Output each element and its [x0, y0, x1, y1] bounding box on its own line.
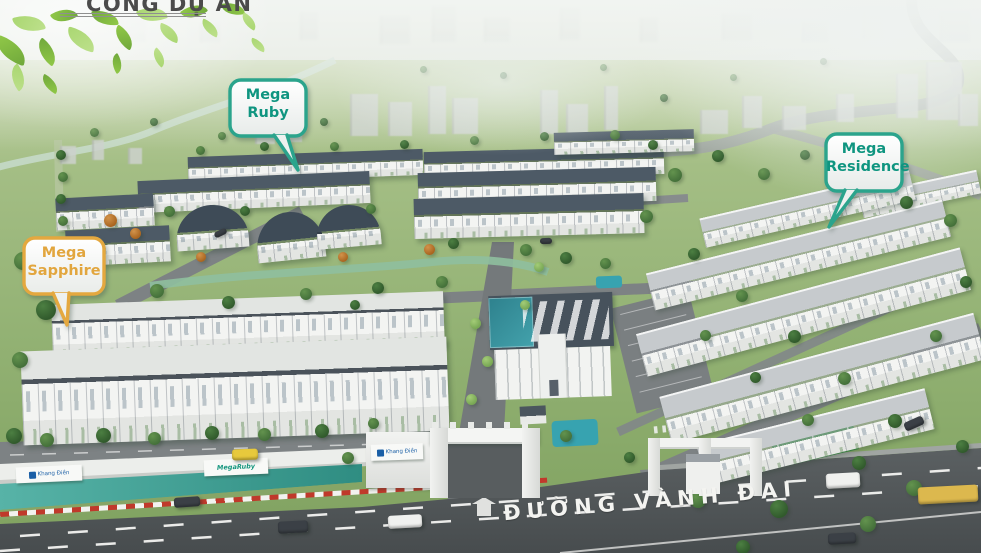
building-row — [414, 193, 645, 239]
tree — [400, 140, 409, 149]
tree — [436, 276, 448, 288]
tree — [148, 432, 161, 445]
distant-building — [940, 12, 970, 42]
tree — [315, 424, 329, 438]
vehicle-white — [388, 514, 423, 529]
vehicle-dark — [174, 496, 201, 508]
tree — [802, 414, 814, 426]
khang-dien-billboard: Khang Điền — [16, 465, 83, 484]
distant-building — [484, 18, 510, 42]
tree — [470, 318, 481, 329]
callout-mega-residence: Mega Residence — [821, 131, 931, 233]
tree — [838, 372, 851, 385]
tree — [258, 428, 271, 441]
gate-pillar — [522, 428, 540, 498]
vehicle-dark — [278, 520, 309, 534]
building-row — [554, 129, 695, 155]
tree — [205, 426, 219, 440]
tree — [700, 330, 711, 341]
tree — [342, 452, 354, 464]
billboard-text: Khang Điền — [37, 470, 69, 477]
distant-building — [560, 8, 580, 40]
clubhouse-skylights — [522, 299, 609, 342]
distant-building — [782, 106, 806, 130]
distant-building — [958, 94, 978, 126]
tree — [104, 214, 117, 227]
callout-line1: Mega — [230, 86, 306, 104]
tree — [196, 252, 206, 262]
tree — [300, 288, 312, 300]
distant-building — [350, 94, 378, 136]
tree — [58, 216, 68, 226]
tree — [956, 440, 969, 453]
tree — [888, 414, 902, 428]
distant-building — [128, 148, 142, 164]
tree — [520, 244, 532, 256]
tree — [470, 136, 479, 145]
vehicle-white — [826, 472, 861, 489]
distant-building — [92, 140, 104, 160]
distant-building — [388, 102, 412, 136]
tree — [800, 150, 810, 160]
tree — [58, 172, 68, 182]
swimming-pool — [551, 419, 598, 447]
billboard-text: MegaRuby — [217, 462, 255, 472]
tree — [6, 428, 22, 444]
tree — [736, 290, 748, 302]
tree — [730, 74, 737, 81]
distant-building — [742, 96, 762, 128]
tree — [944, 214, 957, 227]
tree — [218, 132, 226, 140]
tree — [624, 452, 635, 463]
tree — [852, 456, 866, 470]
tree — [750, 372, 761, 383]
tree — [164, 206, 175, 217]
tree — [240, 206, 250, 216]
callout-line1: Mega — [826, 140, 902, 158]
tree — [640, 210, 653, 223]
tree — [736, 540, 750, 553]
clubhouse-door — [549, 380, 559, 396]
tree — [758, 168, 770, 180]
tree — [56, 194, 66, 204]
distant-building — [862, 8, 884, 40]
distant-building — [300, 12, 318, 40]
vehicle-bus — [918, 484, 979, 504]
khang-dien-logo-icon — [376, 449, 383, 456]
tree — [90, 128, 99, 137]
tree — [420, 66, 427, 73]
vehicle-dark — [540, 238, 552, 244]
distant-building — [896, 74, 918, 118]
tree — [366, 204, 376, 214]
tree — [960, 276, 972, 288]
tree — [150, 118, 158, 126]
tree — [820, 58, 827, 65]
tree — [482, 356, 493, 367]
callout-line2: Residence — [826, 158, 902, 176]
gate-sign-text: Khang Điền — [385, 448, 417, 455]
vehicle-taxi — [232, 449, 258, 461]
callout-line2: Ruby — [230, 104, 306, 122]
tree — [930, 330, 942, 342]
tree — [712, 150, 724, 162]
callout-line1: Mega — [24, 244, 104, 262]
tree — [660, 94, 668, 102]
building-row — [20, 337, 449, 446]
distant-building — [432, 6, 456, 42]
tree — [368, 418, 379, 429]
distant-building — [700, 110, 728, 134]
gate-wall: Khang Điền — [366, 432, 430, 488]
tree — [600, 64, 607, 71]
main-entrance-gate — [430, 420, 540, 498]
callout-mega-ruby: Mega Ruby — [227, 77, 337, 177]
distant-building — [802, 22, 828, 42]
tree — [40, 433, 54, 447]
tree — [520, 300, 530, 310]
callout-label: Mega Sapphire — [24, 244, 104, 280]
distant-building — [640, 18, 658, 42]
distant-building — [428, 86, 446, 134]
tree — [560, 252, 572, 264]
callout-line2: Sapphire — [24, 262, 104, 280]
tree — [448, 238, 459, 249]
tree — [96, 428, 111, 443]
tree — [534, 262, 544, 272]
tree — [12, 352, 28, 368]
tree — [788, 330, 801, 343]
tree — [600, 258, 611, 269]
tree — [860, 516, 876, 532]
callout-mega-sapphire: Mega Sapphire — [21, 235, 131, 335]
tree — [222, 296, 235, 309]
tree — [338, 252, 348, 262]
gate-sign: Khang Điền — [371, 443, 424, 461]
distant-building — [926, 62, 962, 120]
tree — [466, 394, 477, 405]
distant-building — [540, 90, 558, 134]
callout-label: Mega Ruby — [230, 86, 306, 122]
tree — [540, 132, 549, 141]
project-aerial-render: Khang Điền Khang Điền MegaRuby ĐƯỜNG VÀN… — [0, 0, 981, 553]
small-pool — [596, 276, 622, 289]
vehicle-dark — [828, 532, 857, 544]
header-underline — [60, 13, 206, 17]
distant-building — [836, 94, 854, 122]
tree — [648, 140, 658, 150]
distant-building — [380, 16, 410, 44]
tree — [560, 430, 572, 442]
clubhouse — [488, 292, 616, 400]
distant-building — [452, 98, 478, 134]
distant-building — [722, 14, 752, 40]
tree — [500, 72, 507, 79]
tree — [668, 168, 682, 182]
gate-pillar — [430, 428, 448, 498]
gate-opening — [448, 444, 522, 498]
khang-dien-logo-icon — [28, 471, 35, 478]
callout-label: Mega Residence — [826, 140, 902, 176]
tree — [196, 146, 205, 155]
tree — [150, 284, 164, 298]
tree — [424, 244, 435, 255]
tree — [56, 150, 66, 160]
mega-ruby-billboard: MegaRuby — [204, 458, 269, 477]
tree — [372, 282, 384, 294]
tree — [130, 228, 141, 239]
tree — [688, 248, 700, 260]
tree — [610, 130, 620, 140]
distant-building — [604, 86, 618, 130]
tree — [350, 300, 360, 310]
